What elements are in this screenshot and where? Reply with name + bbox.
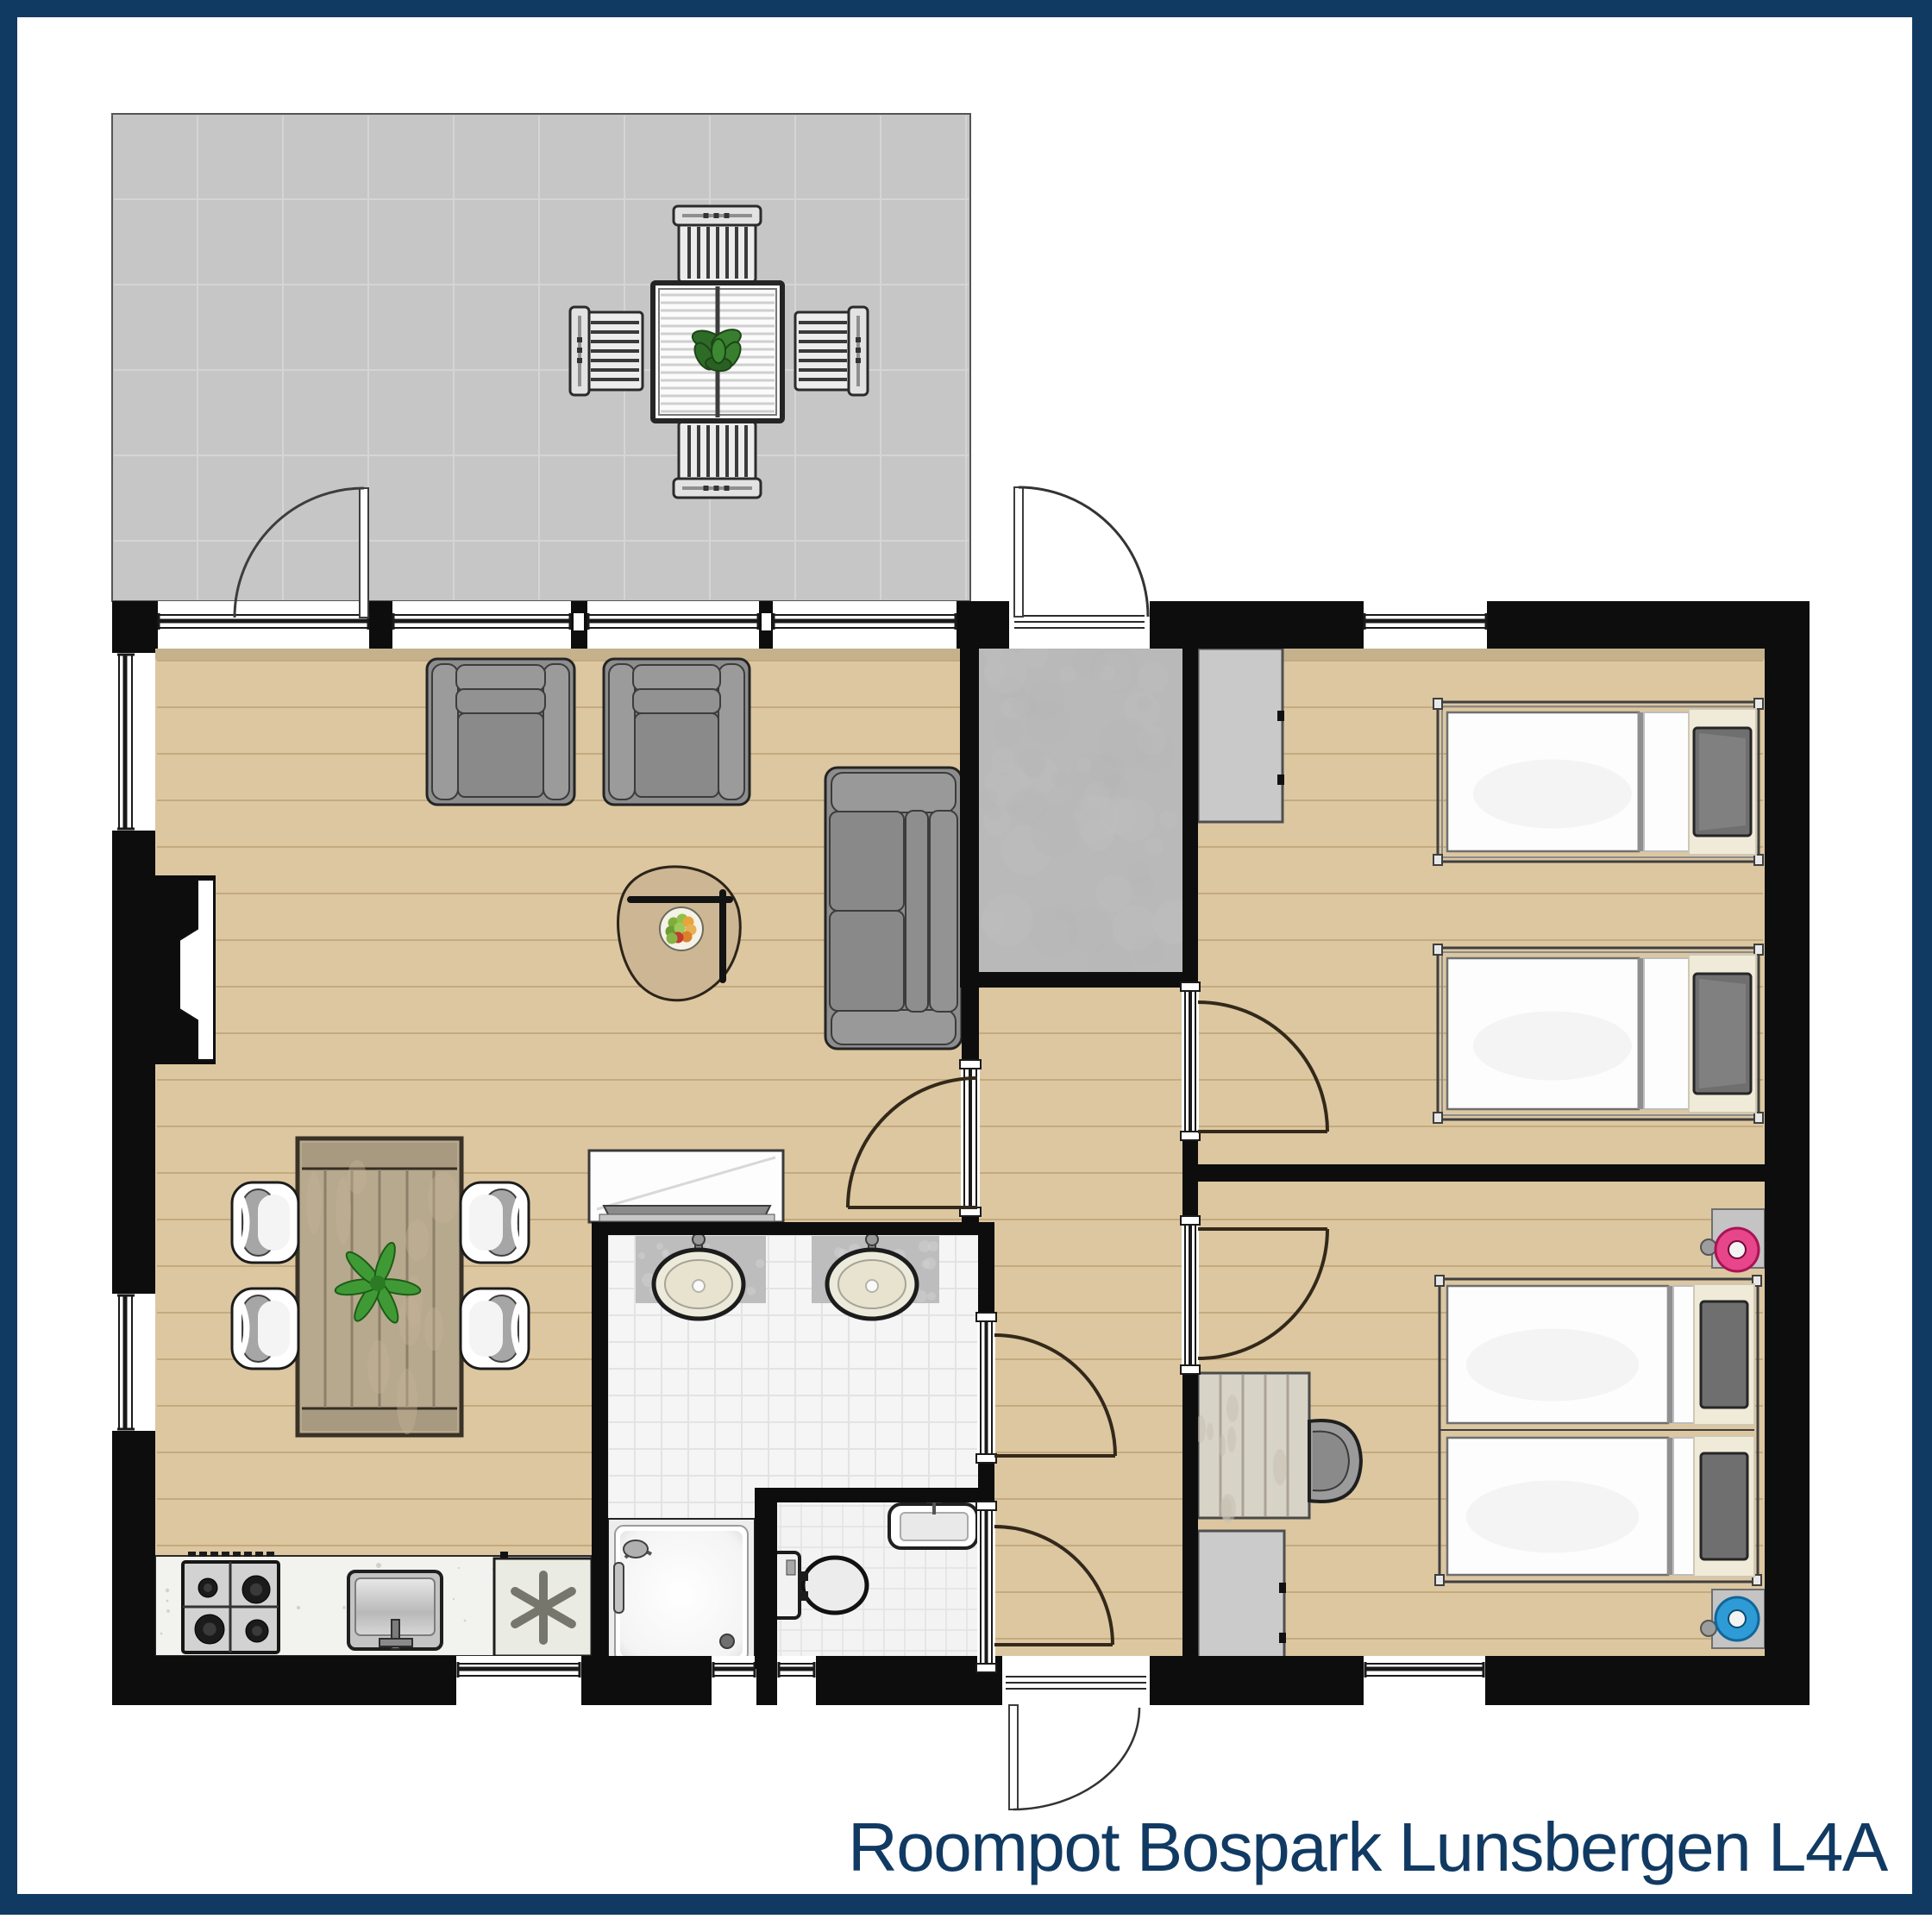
svg-text:Roompot Bospark Lunsbergen L4A: Roompot Bospark Lunsbergen L4A xyxy=(848,1809,1889,1885)
